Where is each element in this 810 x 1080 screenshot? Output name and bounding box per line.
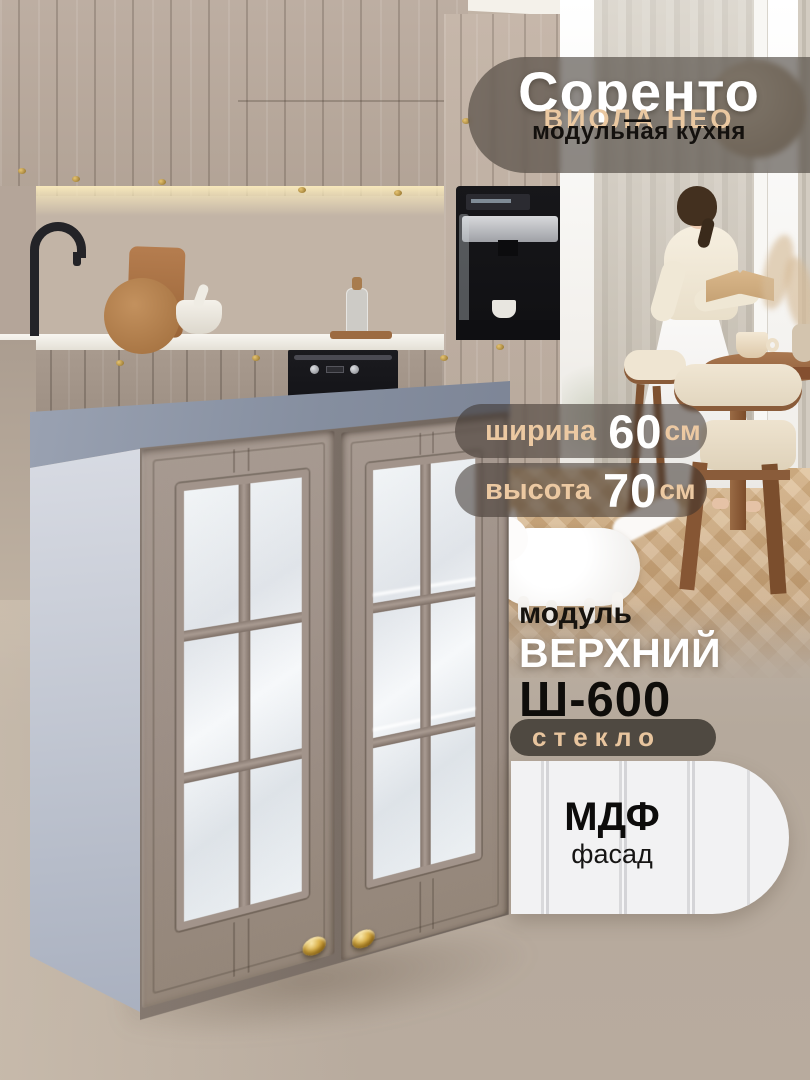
spec-width-value: 60: [608, 404, 662, 459]
mug: [736, 332, 768, 358]
muntin-vertical: [420, 464, 430, 868]
woman-foot: [744, 501, 761, 512]
chair-rail: [700, 470, 790, 480]
spec-height-label: высота: [485, 474, 591, 507]
rail-groove-top: [233, 448, 249, 473]
spec-height-value: 70: [603, 463, 657, 518]
vase: [792, 324, 810, 362]
mug-handle: [766, 338, 779, 352]
module-info: модуль ВЕРХНИЙ Ш-600: [519, 597, 799, 725]
cabinet-knob: [72, 176, 80, 182]
cabinet-side-panel: [28, 446, 144, 1018]
product-banner: Соренто — ВИОЛА НЕО — модульная кухня ши…: [0, 0, 810, 1080]
rail-groove-bottom: [419, 878, 433, 933]
glass-feature-badge: стекло: [510, 719, 716, 756]
cabinet-knob: [18, 168, 26, 174]
module-code: Ш-600: [519, 675, 799, 725]
cabinet-front: [140, 145, 515, 1025]
cabinet-seam: [238, 100, 466, 102]
glass-frame: [176, 469, 308, 931]
material-title: МДФ: [537, 795, 687, 839]
glass-feature-label: стекло: [532, 722, 661, 753]
spec-width-label: ширина: [485, 415, 596, 448]
chair-seat: [700, 420, 796, 470]
cabinet-knob: [116, 360, 124, 366]
muntin-vertical: [238, 483, 250, 907]
brand-badge: Соренто — ВИОЛА НЕО — модульная кухня: [468, 57, 810, 173]
faucet-spout: [73, 252, 81, 266]
spec-width-badge: ширина 60 см: [455, 404, 707, 458]
spec-height-badge: высота 70 см: [455, 463, 707, 517]
chair-back: [674, 364, 802, 406]
glass-frame: [366, 451, 481, 889]
spec-width-unit: см: [664, 415, 700, 447]
material-card: МДФ фасад: [511, 761, 789, 914]
rail-groove-bottom: [233, 918, 249, 977]
faucet-pipe: [30, 252, 39, 336]
module-name: ВЕРХНИЙ: [519, 631, 799, 675]
woman-foot: [712, 498, 729, 509]
brand-tagline: модульная кухня: [468, 119, 810, 145]
rail-groove-top: [419, 432, 433, 455]
material-text: МДФ фасад: [537, 795, 687, 869]
module-kicker: модуль: [519, 597, 799, 631]
cabinet-door-left: [142, 431, 335, 1009]
material-subtitle: фасад: [537, 839, 687, 869]
spec-height-unit: см: [659, 474, 695, 506]
